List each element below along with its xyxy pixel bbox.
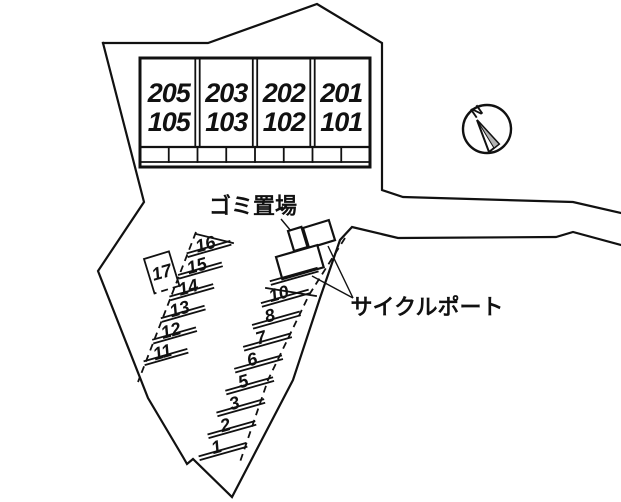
building: 205105203103202102201101	[140, 58, 370, 167]
stall-number: 3	[227, 392, 242, 414]
cycle-port-label: サイクルポート	[312, 246, 503, 320]
stall-number: 11	[151, 340, 174, 364]
parking-column-right: 123567810	[199, 238, 345, 462]
garbage-label-text: ゴミ置場	[209, 194, 297, 219]
stall-number: 14	[176, 275, 201, 300]
stall-number: 16	[193, 232, 219, 257]
unit-number-lower: 102	[263, 107, 306, 137]
cycle-port-label-text: サイクルポート	[351, 295, 504, 320]
unit-number-lower: 101	[320, 107, 362, 137]
unit-number-upper: 202	[262, 78, 306, 108]
garbage-label: ゴミ置場	[209, 194, 297, 232]
unit-number-lower: 105	[148, 107, 192, 137]
stall-number: 1	[209, 436, 224, 458]
parking-stall-17: 17	[144, 251, 179, 293]
unit-number-upper: 201	[319, 78, 362, 108]
stall-number: 10	[266, 281, 291, 306]
compass-icon: N	[463, 102, 511, 153]
stall-number: 8	[262, 305, 277, 327]
parking-column-left: 111213141516	[138, 232, 233, 382]
stall-number: 2	[217, 414, 233, 436]
stall-number: 13	[167, 297, 192, 322]
stall-number: 5	[236, 370, 252, 392]
stall-number: 15	[184, 253, 210, 278]
stall-number: 6	[244, 348, 260, 370]
unit-number-upper: 205	[147, 78, 192, 108]
stall-number: 17	[149, 260, 175, 285]
unit-number-lower: 103	[205, 107, 248, 137]
site-plan: 205105203103202102201101 123567810 11121…	[0, 0, 621, 502]
stall-number: 12	[159, 318, 184, 343]
stall-number: 7	[253, 326, 269, 348]
unit-number-upper: 203	[204, 78, 248, 108]
